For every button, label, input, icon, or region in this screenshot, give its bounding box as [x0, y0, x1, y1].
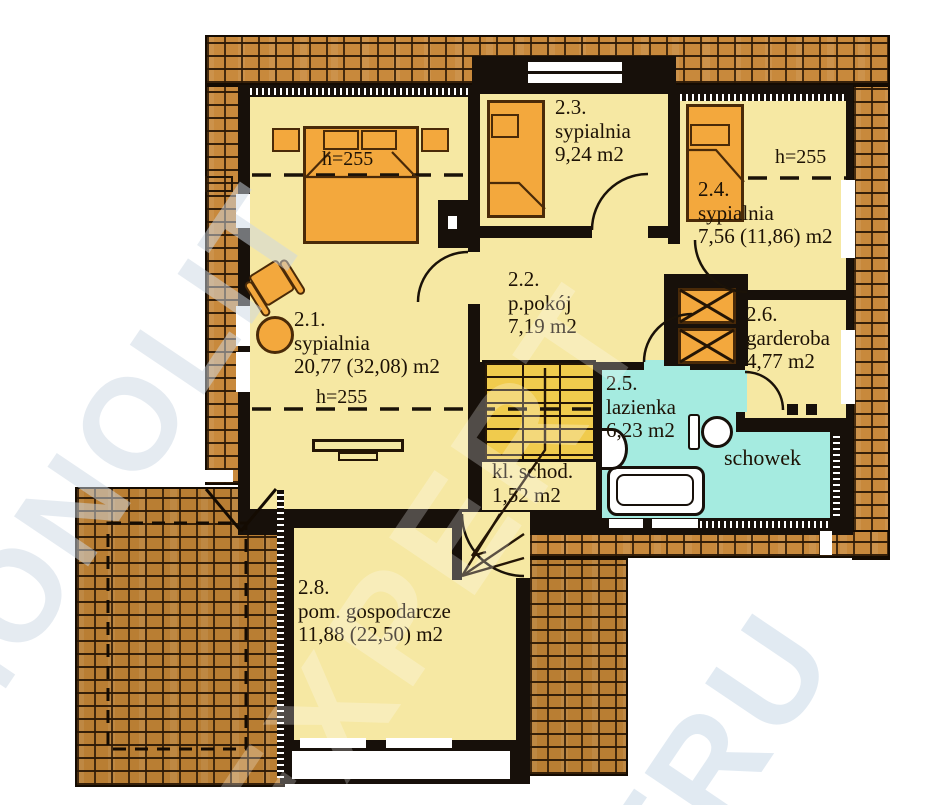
room-name: sypialnia	[555, 120, 631, 144]
stair-winder-floor	[460, 512, 530, 578]
room-area: 4,77 m2	[746, 350, 830, 374]
room-label-2-5: 2.5. lazienka 6,23 m2	[606, 372, 676, 443]
room-id: 2.8.	[298, 576, 451, 600]
hatch-strip	[680, 94, 846, 101]
height-label-2-1-bottom: h=255	[316, 386, 367, 408]
floor-plan-canvas: 2.1. sypialnia 20,77 (32,08) m2 h=255 h=…	[0, 0, 940, 805]
pillow-icon	[491, 114, 519, 138]
window-left-1	[236, 194, 250, 228]
room-name: pom. gospodarcze	[298, 600, 451, 624]
room-name: sypialnia	[698, 202, 833, 226]
nightstand-icon	[272, 128, 300, 152]
window-bottom-left	[201, 470, 233, 482]
room-name: garderoba	[746, 327, 830, 351]
pillow-icon	[690, 124, 730, 146]
dresser-icon	[312, 439, 404, 452]
room-id: 2.3.	[555, 96, 631, 120]
window-left-3	[236, 352, 250, 392]
room-area: 9,24 m2	[555, 143, 631, 167]
room-id: 2.2.	[508, 268, 577, 292]
staircase-icon	[482, 360, 596, 462]
wall-peg	[806, 404, 817, 415]
room-area: 11,88 (22,50) m2	[298, 623, 451, 647]
round-table-icon	[256, 316, 294, 354]
stairs-name: kl. schod.	[492, 460, 573, 484]
room-area: 7,19 m2	[508, 315, 577, 339]
roof-bottom-right-strip	[528, 558, 628, 776]
window-left-2	[236, 306, 250, 346]
height-label-2-4: h=255	[775, 146, 826, 168]
height-label-2-1-top: h=255	[322, 148, 373, 170]
nightstand-icon	[421, 128, 449, 152]
stairs-label: kl. schod. 1,52 m2	[492, 460, 573, 507]
room-name: p.pokój	[508, 292, 577, 316]
toilet-bowl	[701, 416, 733, 448]
pillow-icon	[323, 130, 359, 150]
room-name: lazienka	[606, 396, 676, 420]
room-id: 2.6.	[746, 303, 830, 327]
room-label-2-4: 2.4. sypialnia 7,56 (11,86) m2	[698, 178, 833, 249]
hatch-strip	[700, 521, 830, 528]
dormer-window	[528, 62, 622, 71]
door-gap-2-1-2-2	[466, 252, 482, 304]
room-id: 2.1.	[294, 308, 440, 332]
room-name: sypialnia	[294, 332, 440, 356]
winder-side-wall	[452, 510, 462, 580]
room-area: 7,56 (11,86) m2	[698, 225, 833, 249]
window-2-8-1	[300, 738, 366, 748]
room-id: 2.4.	[698, 178, 833, 202]
schowek-label: schowek	[724, 446, 801, 471]
window-bath-2	[652, 519, 698, 528]
wall-2-3-2-2-stub	[648, 226, 668, 238]
pillar-notch	[448, 216, 457, 229]
wall-2-3-2-2	[480, 226, 592, 238]
room-id: 2.5.	[606, 372, 676, 396]
terrace	[292, 751, 510, 779]
room-label-2-3: 2.3. sypialnia 9,24 m2	[555, 96, 631, 167]
room-area: 20,77 (32,08) m2	[294, 355, 440, 379]
wall-peg	[787, 404, 798, 415]
room-label-2-6: 2.6. garderoba 4,77 m2	[746, 303, 830, 374]
chimney-flue-icon	[678, 328, 736, 364]
roof-right-strip	[852, 85, 890, 560]
room-label-2-2: 2.2. p.pokój 7,19 m2	[508, 268, 577, 339]
roof-band-notch	[820, 531, 832, 555]
roof-window-marker	[205, 176, 233, 192]
hatch-strip	[277, 490, 284, 778]
room-area: 6,23 m2	[606, 419, 676, 443]
hatch-strip	[250, 88, 470, 95]
room-label-2-8: 2.8. pom. gospodarcze 11,88 (22,50) m2	[298, 576, 451, 647]
room-label-2-1: 2.1. sypialnia 20,77 (32,08) m2	[294, 308, 440, 379]
bathtub-inner	[616, 474, 694, 506]
dresser-base	[338, 452, 378, 461]
window-bath-1	[609, 519, 643, 528]
window-right-1	[841, 180, 855, 258]
window-right-2	[841, 330, 855, 404]
pillow-icon	[361, 130, 397, 150]
stairs-area: 1,52 m2	[492, 484, 573, 508]
toilet-tank	[688, 414, 700, 450]
door-gap-garderoba	[734, 370, 747, 412]
wall-pillar	[438, 200, 480, 248]
hatch-strip	[833, 434, 840, 516]
window-2-8-2	[386, 738, 452, 748]
bathtub-icon	[607, 466, 705, 516]
dormer-window	[528, 74, 622, 83]
chimney-flue-icon	[678, 288, 736, 324]
